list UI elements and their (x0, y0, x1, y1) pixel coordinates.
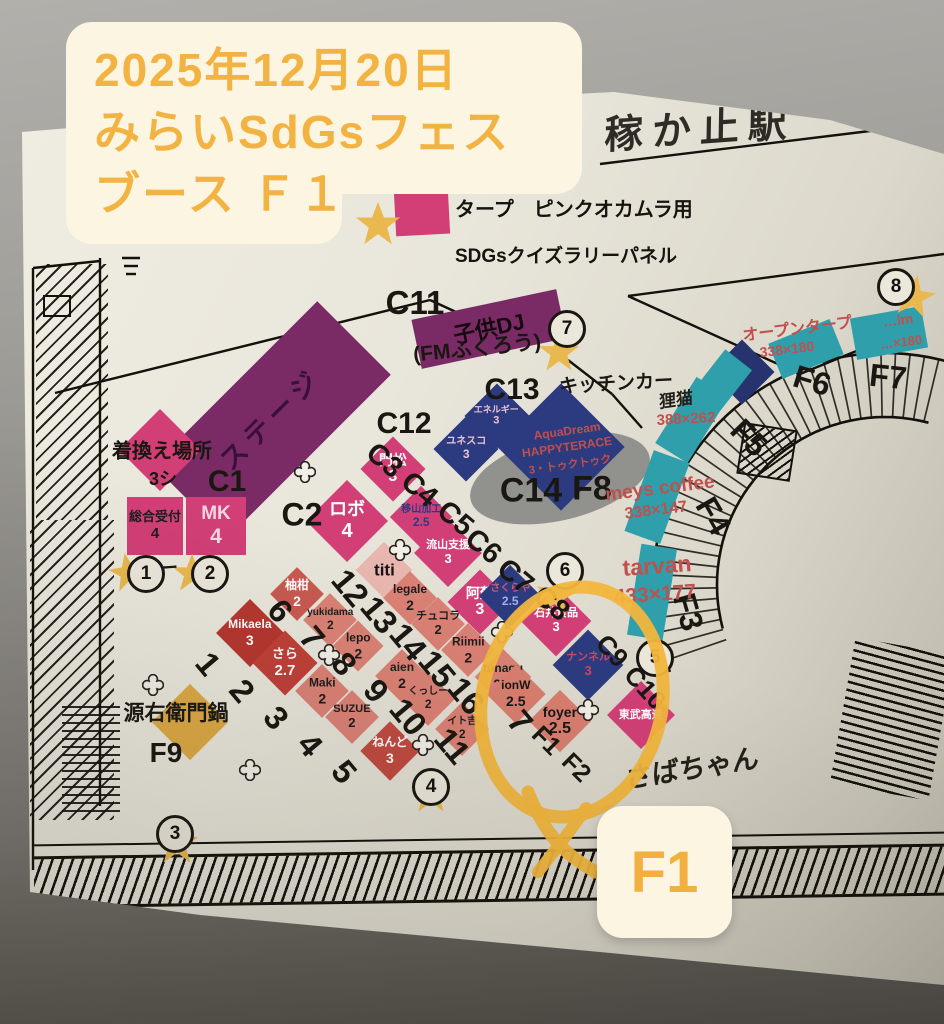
note-event-name: みらいSdGsフェス (94, 96, 510, 162)
booth-f1-badge: F1 (597, 806, 732, 938)
note-date: 2025年12月20日 (94, 34, 459, 100)
note-booth-number: ブース Ｆ１ (94, 158, 346, 224)
event-map-photo: 稼か止駅 タープ ピンクオカムラ用 SDGsクイズラリーパネル ステージ子供DJ… (0, 0, 944, 1024)
